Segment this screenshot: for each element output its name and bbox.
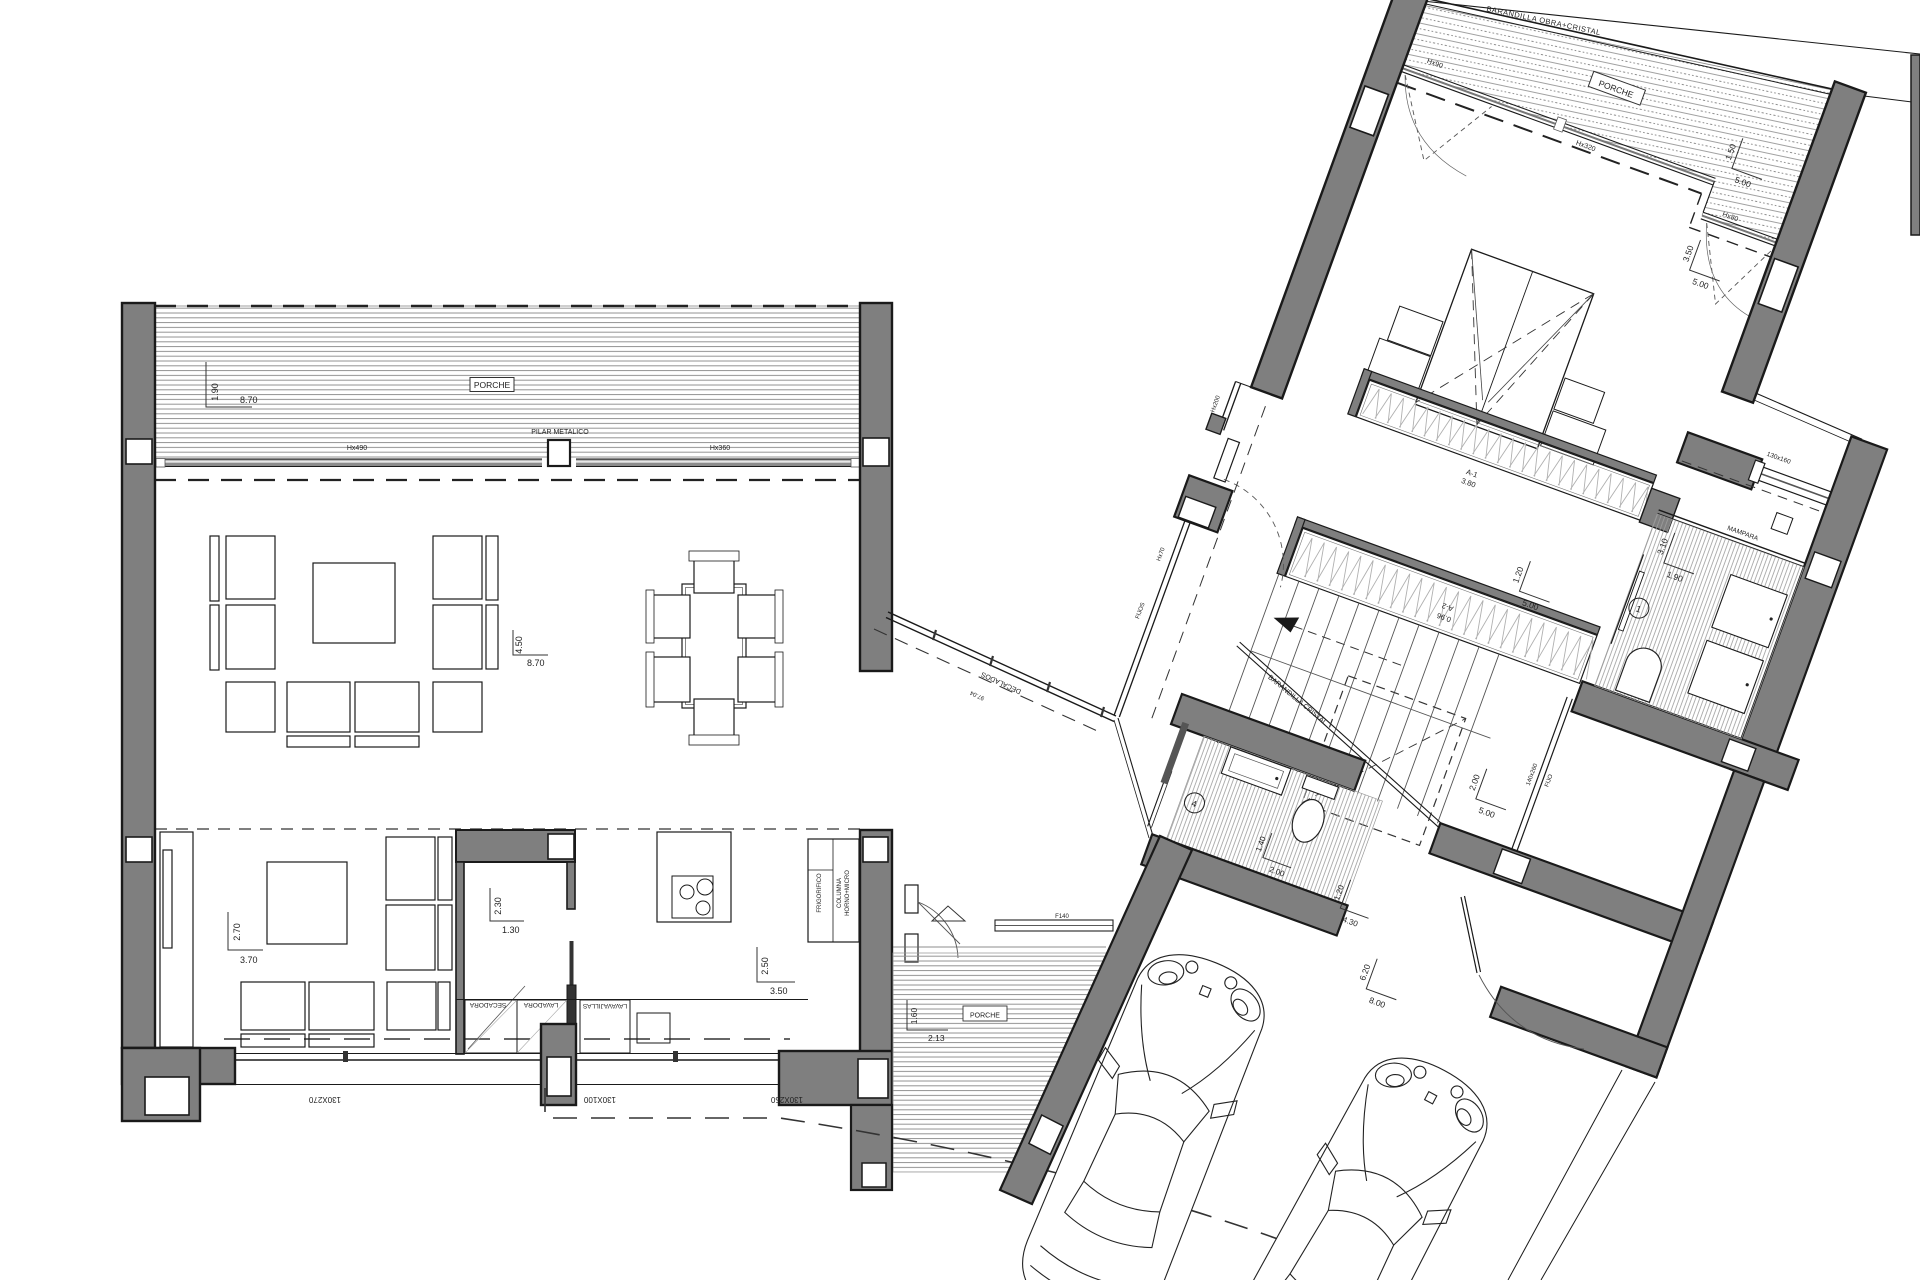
svg-text:1.30: 1.30 [502,925,520,935]
svg-text:4.50: 4.50 [514,636,524,654]
svg-text:F140: F140 [1055,914,1069,920]
svg-text:2.50: 2.50 [760,957,770,975]
svg-text:FRIGORIFICO: FRIGORIFICO [817,873,823,913]
svg-text:8.70: 8.70 [527,658,545,668]
svg-text:LAVAVAJILLAS: LAVAVAJILLAS [582,1002,627,1009]
svg-text:PORCHE: PORCHE [970,1013,1000,1020]
svg-text:Hx360: Hx360 [710,445,730,452]
svg-text:LAVADORA: LAVADORA [523,1001,558,1008]
svg-text:COLUMNA: COLUMNA [837,878,843,908]
svg-text:SECADORA: SECADORA [469,1001,506,1008]
svg-text:1.90: 1.90 [210,383,220,401]
svg-text:130X270: 130X270 [308,1095,341,1104]
svg-text:2.13: 2.13 [928,1033,945,1043]
svg-text:HORNO+MICRO: HORNO+MICRO [845,870,851,916]
svg-text:PORCHE: PORCHE [474,380,511,390]
svg-text:1.60: 1.60 [909,1007,919,1024]
svg-text:Hx490: Hx490 [347,445,367,452]
svg-text:PILAR METALICO: PILAR METALICO [531,429,589,436]
svg-text:2.70: 2.70 [232,923,242,941]
svg-text:2.30: 2.30 [493,897,503,915]
svg-text:3.50: 3.50 [770,986,788,996]
svg-text:8.70: 8.70 [240,395,258,405]
svg-text:3.70: 3.70 [240,955,258,965]
svg-text:130X250: 130X250 [770,1095,803,1104]
svg-text:130X100: 130X100 [583,1095,616,1104]
